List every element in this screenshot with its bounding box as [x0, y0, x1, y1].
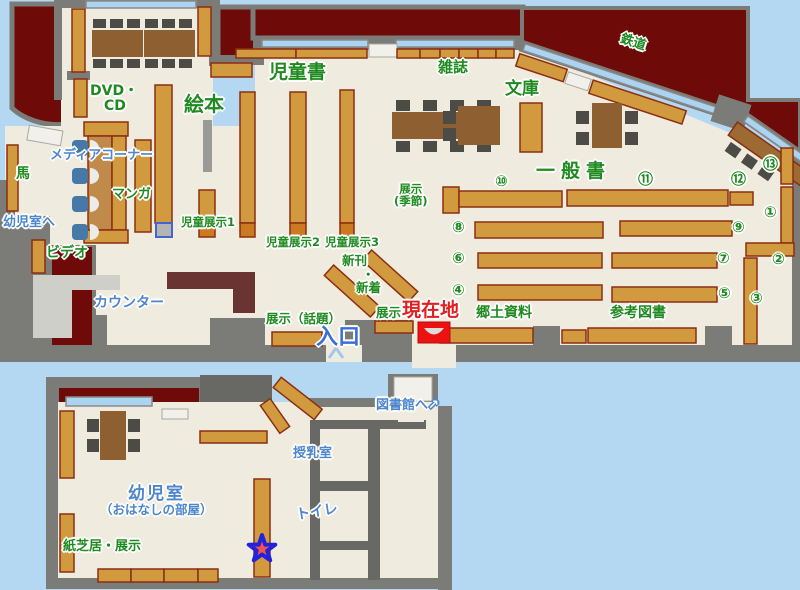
shelf-number-7: ⑦: [717, 251, 730, 267]
label-bunko: 文庫: [505, 80, 539, 98]
label-tenji-kisetsu: 展示(季節): [394, 183, 428, 207]
label-jido-tenji2: 児童展示2: [266, 236, 320, 248]
shelf-number-12: ⑫: [731, 172, 746, 188]
bunko-shelf: [520, 103, 542, 152]
media-corner-unit: [72, 122, 151, 243]
label-counter: カウンター: [94, 296, 164, 311]
label-dvd-cd: DVD・CD: [90, 84, 138, 114]
label-video: ビデオ: [46, 246, 88, 261]
shelf-number-8: ⑧: [452, 220, 465, 236]
media-seat: [72, 224, 88, 240]
shelf-number-4: ④: [452, 283, 465, 299]
shelf-number-5: ⑤: [718, 286, 731, 302]
shelf-number-1: ①: [764, 205, 777, 221]
label-to-toshokan: 図書館へ↗: [376, 399, 439, 413]
shelf-number-2: ②: [772, 252, 785, 268]
label-iriguchi: 入口: [316, 326, 360, 349]
label-to-yojishitsu: 幼児室へ: [3, 216, 55, 230]
shelf-number-3: ③: [750, 291, 763, 307]
northeast-arrow-icon: ↗: [428, 398, 439, 413]
shelf-number-6: ⑥: [452, 251, 465, 267]
ehon-display: [203, 120, 212, 172]
current-location-marker: [418, 322, 450, 343]
label-genzaichi: 現在地: [402, 300, 459, 320]
wall-sign: [369, 44, 397, 57]
label-jido-tenji3: 児童展示3: [325, 236, 379, 248]
label-junyushitsu: 授乳室: [293, 447, 332, 461]
label-ehon: 絵本: [184, 94, 224, 115]
star-shelf: [254, 479, 270, 577]
label-ohanashi: （おはなしの部屋）: [100, 503, 213, 516]
label-kyodo-shiryo: 郷土資料: [476, 306, 532, 321]
label-ippansho: 一般書: [536, 161, 611, 181]
shelf-number-11: ⑪: [638, 172, 653, 188]
label-sanko-tosho: 参考図書: [610, 306, 666, 321]
shelf-number-9: ⑨: [732, 220, 745, 236]
label-kamishibai-tenji: 紙芝居・展示: [63, 540, 141, 554]
shelf-number-10: ⑩: [495, 174, 508, 190]
label-media-corner: メディアコーナー: [50, 149, 153, 163]
label-tenji: 展示: [376, 306, 401, 319]
shelf-number-13: ⑬: [763, 157, 778, 173]
label-jido-tenji1: 児童展示1: [181, 216, 235, 228]
library-floor-map: DVD・CD 絵本 児童書 雑誌 文庫 鉄道 一般書 馬 メディアコーナー マン…: [0, 0, 800, 590]
label-zasshi: 雑誌: [438, 60, 468, 76]
label-uma: 馬: [16, 167, 30, 182]
label-jidosho: 児童書: [269, 62, 326, 82]
label-shinchaku: 新着: [356, 281, 381, 294]
video-shelf: [32, 240, 45, 273]
label-manga: マンガ: [112, 188, 151, 202]
label-yojishitsu: 幼児室: [128, 485, 185, 503]
label-tenji-wadai: 展示（話題）: [266, 312, 341, 325]
label-shinkan: 新刊: [342, 254, 367, 267]
